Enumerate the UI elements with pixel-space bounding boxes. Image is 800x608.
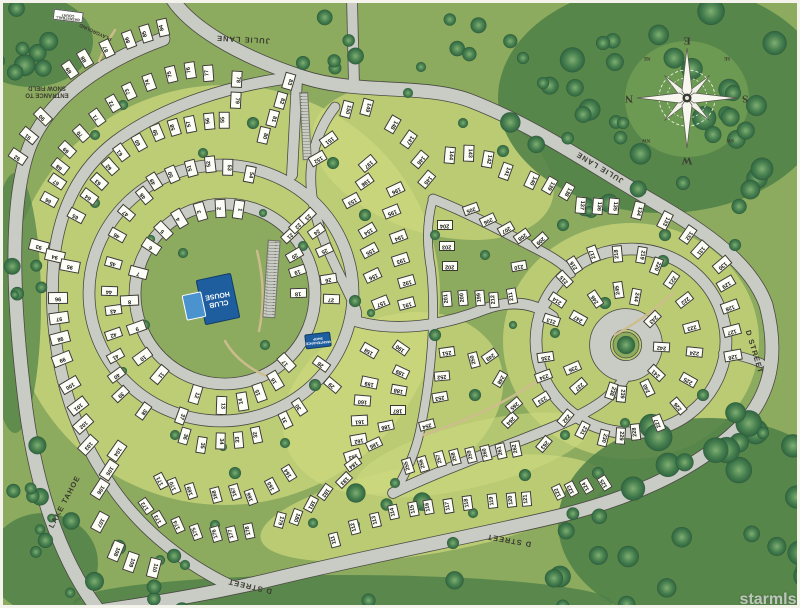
- lot-number: 32: [253, 431, 260, 438]
- lot-number: 39: [116, 390, 124, 398]
- lot-161: 161: [350, 414, 368, 425]
- lot-117: 117: [442, 498, 454, 514]
- lot-number: 34: [217, 438, 223, 444]
- lot-244: 244: [629, 288, 642, 307]
- lot-118: 118: [461, 495, 473, 511]
- lot-148: 148: [383, 114, 401, 134]
- lot-131: 131: [690, 239, 710, 260]
- lot-number: 85: [142, 29, 149, 36]
- lot-number: 108: [112, 546, 121, 557]
- lot-number: 8: [127, 297, 130, 303]
- lot-number: 15: [255, 388, 262, 396]
- lot-125: 125: [596, 474, 612, 492]
- lot-92: 92: [7, 146, 28, 165]
- lot-number: 208: [517, 231, 528, 241]
- lot-43: 43: [104, 304, 122, 316]
- lot-42: 42: [103, 326, 122, 341]
- lot-number: 96: [55, 295, 61, 301]
- lot-number: 182: [320, 487, 330, 498]
- lot-72: 72: [104, 93, 122, 113]
- lot-number: 45: [109, 260, 116, 267]
- lot-number: 251: [442, 349, 452, 356]
- lot-36: 36: [177, 426, 191, 445]
- lot-136: 136: [591, 197, 603, 215]
- lot-number: 63: [95, 177, 103, 185]
- lot-64: 64: [79, 187, 99, 205]
- lot-45: 45: [103, 256, 122, 270]
- lot-number: 226: [673, 401, 683, 412]
- lot-146: 146: [410, 149, 429, 169]
- lot-165: 165: [264, 477, 280, 496]
- lot-209: 209: [531, 231, 550, 249]
- lot-39: 39: [110, 385, 129, 404]
- lot-1: 1: [231, 199, 245, 219]
- lot-number: 107: [95, 517, 104, 528]
- lot-number: 16: [271, 376, 279, 384]
- lot-16: 16: [265, 369, 284, 391]
- lot-12: 12: [187, 383, 203, 404]
- lot-31: 31: [277, 410, 293, 430]
- lot-number: 83: [284, 77, 291, 84]
- lot-number: 152: [312, 153, 323, 162]
- lot-191: 191: [396, 296, 415, 311]
- lot-121: 121: [520, 491, 531, 507]
- lot-number: 99: [58, 355, 66, 362]
- lot-number: 89: [66, 65, 74, 73]
- lot-15: 15: [251, 381, 268, 403]
- lot-4: 4: [169, 207, 188, 229]
- lot-number: 234: [538, 372, 549, 380]
- lot-252: 252: [434, 370, 451, 381]
- lot-239: 239: [615, 385, 627, 403]
- lot-95: 95: [59, 258, 81, 273]
- lot-number: 126: [728, 351, 738, 358]
- lot-265: 265: [505, 396, 524, 414]
- lot-262: 262: [509, 440, 522, 458]
- lot-number: 103: [83, 440, 93, 450]
- lot-number: 155: [364, 245, 375, 254]
- lot-number: 5: [160, 227, 166, 233]
- lot-140: 140: [523, 170, 540, 190]
- lot-number: 177: [228, 529, 236, 539]
- lot-135: 135: [607, 197, 619, 215]
- lot-40: 40: [106, 366, 126, 384]
- lot-number: 114: [389, 507, 396, 517]
- lot-number: 136: [594, 201, 600, 211]
- lot-number: 119: [489, 496, 496, 505]
- lot-number: 41: [111, 352, 119, 360]
- lot-number: 84: [160, 23, 167, 30]
- lot-number: 117: [445, 501, 452, 511]
- lot-number: 191: [401, 299, 411, 307]
- lot-71: 71: [88, 107, 106, 127]
- lot-89: 89: [60, 58, 79, 79]
- lot-154: 154: [357, 221, 377, 239]
- lot-228: 228: [629, 423, 641, 441]
- lot-73: 73: [121, 81, 138, 101]
- lot-number: 52: [207, 161, 213, 168]
- lot-220: 220: [648, 256, 663, 275]
- lot-144: 144: [443, 146, 455, 164]
- lot-28: 28: [311, 355, 331, 373]
- lot-number: 14: [239, 398, 245, 405]
- lot-204: 204: [437, 220, 453, 230]
- lot-number: 171: [156, 476, 165, 487]
- lot-210: 210: [510, 260, 527, 273]
- lot-85: 85: [138, 23, 154, 43]
- lot-number: 102: [78, 419, 88, 429]
- lot-20: 20: [284, 246, 304, 263]
- lot-205: 205: [462, 202, 480, 217]
- lot-234: 234: [533, 368, 552, 383]
- lot-number: 190: [396, 343, 407, 353]
- lot-number: 79: [232, 97, 238, 103]
- lot-127: 127: [722, 322, 742, 337]
- lot-57: 57: [183, 115, 197, 134]
- lot-number: 181: [306, 499, 315, 510]
- lot-number: 216: [569, 260, 579, 271]
- lot-157: 157: [370, 294, 390, 310]
- lot-number: 33: [235, 437, 241, 444]
- lot-number: 49: [150, 177, 158, 185]
- lot-120: 120: [505, 492, 517, 508]
- lot-116: 116: [422, 499, 434, 516]
- lot-number: 144: [446, 150, 452, 160]
- lot-number: 231: [577, 425, 586, 436]
- lot-237: 237: [568, 377, 587, 396]
- lot-66: 66: [39, 190, 59, 207]
- lot-number: 97: [56, 315, 63, 321]
- lot-24: 24: [306, 222, 326, 240]
- lot-number: 170: [170, 481, 179, 492]
- lot-number: 146: [414, 154, 424, 165]
- lot-107: 107: [90, 510, 110, 533]
- lot-230: 230: [596, 429, 610, 448]
- lot-132: 132: [678, 223, 697, 244]
- lot-212: 212: [488, 292, 499, 309]
- lot-138: 138: [557, 181, 575, 201]
- lot-number: 175: [192, 527, 200, 538]
- lot-number: 50: [168, 170, 175, 178]
- lot-number: 55: [221, 117, 227, 123]
- lot-number: 159: [364, 378, 374, 385]
- lot-number: 94: [51, 253, 58, 260]
- lot-number: 100: [65, 380, 76, 389]
- lot-214: 214: [547, 291, 567, 309]
- lot-number: 131: [695, 244, 705, 255]
- lot-number: 264: [505, 415, 515, 425]
- lot-257: 257: [433, 450, 447, 468]
- lot-number: 92: [14, 152, 22, 160]
- lot-number: 132: [683, 229, 693, 240]
- lot-195: 195: [381, 203, 401, 219]
- lot-number: 253: [435, 393, 445, 400]
- lot-56: 56: [203, 112, 215, 130]
- lot-number: 7: [136, 269, 140, 275]
- lot-number: 242: [656, 344, 665, 350]
- lot-number: 202: [445, 263, 454, 269]
- lot-number: 218: [614, 249, 620, 259]
- lot-249: 249: [481, 347, 500, 364]
- lot-number: 69: [63, 145, 71, 153]
- lot-216: 216: [565, 255, 583, 275]
- lot-111: 111: [327, 531, 341, 548]
- lot-number: 127: [727, 326, 737, 334]
- lot-number: 54: [246, 170, 253, 177]
- lot-number: 123: [566, 484, 575, 495]
- lot-229: 229: [614, 427, 625, 445]
- lot-77: 77: [202, 64, 214, 82]
- lot-number: 184: [348, 459, 359, 469]
- lot-number: 262: [512, 444, 519, 454]
- lot-130: 130: [712, 254, 733, 274]
- lot-84: 84: [156, 17, 171, 37]
- lot-243: 243: [642, 309, 661, 328]
- lot-number: 204: [440, 222, 449, 228]
- lot-222: 222: [674, 291, 694, 309]
- lot-number: 11: [155, 370, 163, 378]
- lot-110: 110: [146, 557, 163, 579]
- lot-199: 199: [474, 290, 485, 307]
- lot-109: 109: [122, 551, 140, 574]
- lot-number: 245: [615, 285, 622, 295]
- lot-179: 179: [273, 511, 287, 529]
- lot-55: 55: [219, 111, 230, 128]
- lot-number: 80: [260, 131, 267, 138]
- lot-27: 27: [322, 294, 339, 305]
- lot-260: 260: [479, 444, 493, 462]
- lot-number: 82: [277, 96, 284, 103]
- lot-number: 61: [117, 148, 125, 156]
- lot-number: 220: [652, 261, 660, 272]
- lot-number: 121: [523, 494, 529, 504]
- lot-number: 164: [284, 468, 294, 479]
- lot-number: 23: [303, 212, 311, 220]
- lot-number: 13: [218, 402, 224, 408]
- lot-47: 47: [116, 204, 135, 223]
- lot-number: 57: [187, 120, 194, 127]
- lot-number: 252: [437, 373, 447, 379]
- lot-number: 173: [154, 514, 163, 525]
- lot-11: 11: [149, 363, 170, 385]
- lot-99: 99: [50, 350, 73, 368]
- lot-number: 118: [464, 498, 471, 508]
- lot-86: 86: [121, 29, 138, 50]
- lot-number: 222: [679, 295, 690, 305]
- lot-number: 20: [290, 251, 298, 259]
- lot-number: 74: [145, 78, 152, 86]
- lot-34: 34: [215, 432, 226, 449]
- lot-number: 221: [666, 275, 676, 286]
- lot-number: 238: [607, 386, 615, 396]
- lot-188: 188: [390, 384, 407, 397]
- lot-number: 58: [170, 123, 177, 130]
- lot-152: 152: [307, 149, 327, 167]
- lot-232: 232: [556, 408, 575, 427]
- lot-number: 169: [187, 486, 195, 496]
- lot-number: 198: [359, 176, 370, 186]
- lot-number: 223: [686, 323, 696, 331]
- lot-19: 19: [287, 264, 306, 279]
- lot-number: 66: [45, 195, 53, 203]
- lot-number: 125: [599, 478, 609, 489]
- lot-number: 147: [403, 134, 413, 145]
- lot-number: 247: [573, 313, 584, 322]
- lot-number: 38: [139, 407, 147, 415]
- lot-14: 14: [235, 391, 249, 412]
- lot-251: 251: [438, 346, 455, 358]
- lot-10: 10: [131, 346, 153, 366]
- lot-2: 2: [214, 198, 226, 218]
- lot-number: 47: [122, 209, 130, 217]
- lot-number: 168: [212, 490, 220, 500]
- lot-number: 219: [638, 250, 645, 260]
- lot-223: 223: [681, 320, 700, 334]
- lot-63: 63: [89, 171, 109, 190]
- lot-90: 90: [33, 106, 54, 126]
- lot-9: 9: [125, 319, 147, 336]
- lot-number: 212: [491, 295, 497, 305]
- lot-number: 18: [295, 290, 301, 296]
- lot-187: 187: [390, 405, 406, 415]
- lot-number: 75: [168, 70, 175, 77]
- lot-number: 70: [77, 129, 85, 137]
- lot-211: 211: [506, 287, 519, 304]
- lot-number: 140: [527, 175, 536, 186]
- lot-number: 133: [660, 215, 669, 226]
- lot-65: 65: [66, 206, 86, 223]
- lot-255: 255: [401, 457, 415, 475]
- lot-170: 170: [166, 477, 181, 496]
- lot-81: 81: [265, 108, 280, 127]
- lot-number: 78: [233, 76, 239, 82]
- lot-226: 226: [669, 396, 688, 415]
- lot-number: 154: [362, 225, 373, 234]
- lot-number: 134: [634, 205, 642, 215]
- lot-69: 69: [57, 139, 77, 158]
- lot-number: 157: [375, 298, 386, 307]
- lot-number: 258: [451, 452, 459, 462]
- lot-18: 18: [289, 288, 306, 298]
- lot-155: 155: [359, 241, 379, 258]
- lot-225: 225: [678, 371, 698, 388]
- lot-number: 188: [394, 386, 404, 393]
- lot-70: 70: [71, 123, 90, 143]
- lot-number: 153: [346, 195, 357, 204]
- lot-80: 80: [256, 126, 270, 145]
- lot-number: 141: [501, 166, 509, 177]
- lot-number: 240: [643, 383, 652, 394]
- lot-177: 177: [225, 525, 239, 543]
- lot-number: 53: [224, 164, 230, 170]
- lot-number: 142: [483, 154, 490, 164]
- lot-248: 248: [492, 370, 509, 389]
- lot-76: 76: [184, 61, 197, 79]
- lot-number: 10: [138, 352, 146, 360]
- lot-168: 168: [209, 486, 223, 504]
- lot-number: 225: [683, 375, 694, 384]
- lot-number: 22: [293, 221, 301, 229]
- lot-160: 160: [353, 394, 371, 406]
- lot-number: 26: [325, 276, 332, 282]
- lot-29: 29: [322, 376, 341, 395]
- lot-number: 239: [618, 389, 624, 399]
- lot-253: 253: [431, 391, 448, 404]
- lot-number: 122: [554, 487, 563, 498]
- lot-258: 258: [448, 448, 462, 466]
- lot-126: 126: [723, 348, 743, 362]
- lot-193: 193: [390, 251, 409, 266]
- lot-number: 110: [150, 563, 158, 573]
- lot-156: 156: [362, 267, 382, 284]
- lot-number: 214: [552, 295, 563, 305]
- lot-151: 151: [318, 130, 338, 148]
- lot-145: 145: [417, 169, 436, 189]
- lot-number: 76: [187, 67, 193, 74]
- lot-194: 194: [388, 228, 408, 244]
- lot-245: 245: [612, 281, 624, 299]
- lot-number: 27: [328, 296, 334, 302]
- lot-number: 161: [354, 417, 363, 423]
- lot-128: 128: [720, 298, 741, 314]
- lot-number: 209: [535, 235, 546, 245]
- lot-number: 172: [141, 501, 151, 512]
- lot-147: 147: [399, 129, 417, 149]
- lot-176: 176: [209, 525, 223, 543]
- lot-number: 211: [509, 291, 516, 301]
- lot-number: 43: [110, 307, 117, 313]
- lot-88: 88: [76, 47, 95, 68]
- lot-180: 180: [289, 508, 304, 526]
- lot-53: 53: [222, 158, 233, 175]
- lot-208: 208: [513, 227, 532, 244]
- lot-number: 217: [589, 249, 597, 260]
- lot-149: 149: [359, 97, 374, 116]
- lot-190: 190: [392, 339, 411, 356]
- lot-78: 78: [230, 70, 241, 88]
- lot-number: 9: [134, 324, 139, 330]
- lot-number: 44: [106, 288, 112, 294]
- lot-number: 201: [444, 294, 450, 304]
- lot-124: 124: [578, 477, 594, 495]
- lot-7: 7: [127, 264, 148, 279]
- lot-number: 77: [205, 70, 211, 77]
- lot-139: 139: [540, 175, 558, 195]
- lot-number: 3: [197, 209, 203, 214]
- lot-197: 197: [357, 154, 377, 173]
- lot-number: 200: [460, 293, 466, 303]
- lot-164: 164: [281, 464, 298, 483]
- lot-129: 129: [715, 274, 736, 293]
- lot-48: 48: [135, 185, 154, 205]
- lot-114: 114: [387, 504, 400, 521]
- lot-number: 24: [312, 227, 320, 235]
- lot-number: 215: [559, 274, 569, 284]
- lot-number: 254: [422, 421, 432, 429]
- lot-26: 26: [319, 273, 337, 285]
- lot-49: 49: [145, 171, 163, 191]
- lot-75: 75: [164, 64, 178, 83]
- lot-number: 229: [617, 431, 623, 441]
- lot-number: 60: [135, 138, 143, 146]
- lot-number: 160: [357, 397, 367, 403]
- lot-173: 173: [151, 510, 168, 529]
- lot-189: 189: [392, 364, 411, 380]
- lot-218: 218: [611, 245, 623, 263]
- lot-60: 60: [130, 132, 147, 152]
- lot-number: 156: [367, 271, 378, 280]
- lot-number: 113: [371, 515, 378, 525]
